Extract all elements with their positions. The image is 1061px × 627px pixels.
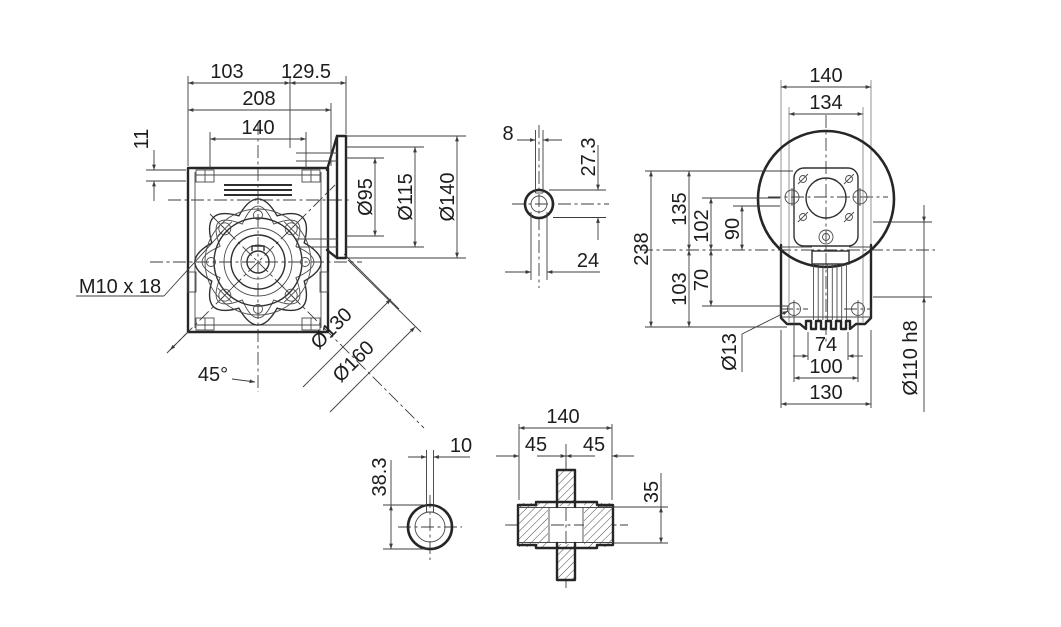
dim-side-135: 135 [669, 192, 691, 225]
dim-output-38-3: 38.3 [369, 458, 391, 497]
output-key-height-dim: 38.3 [369, 458, 428, 549]
dim-front-m10x18: M10 x 18 [79, 276, 161, 298]
side-view: 140 134 238 135 103 102 70 90 [631, 65, 935, 412]
side-top-dimensions: 140 134 [781, 65, 871, 114]
dim-front-103: 103 [210, 61, 243, 83]
dim-side-140: 140 [809, 65, 842, 87]
dim-side-130: 130 [809, 382, 842, 404]
dim-input-24: 24 [577, 250, 599, 272]
dim-front-o140: Ø140 [437, 173, 459, 222]
input-shaft-view: 8 27.3 24 [502, 123, 609, 288]
dim-front-o115: Ø115 [395, 173, 417, 220]
dim-side-74: 74 [815, 334, 837, 356]
hollow-shaft-view: 140 45 45 35 [496, 406, 668, 588]
side-left-dimensions: 238 135 103 102 70 90 [631, 171, 793, 327]
dim-front-208: 208 [242, 88, 275, 110]
dim-hollow-140: 140 [546, 406, 579, 428]
input-key-width-dim: 8 [502, 123, 562, 145]
dim-front-140: 140 [241, 117, 274, 139]
dim-front-45deg: 45° [198, 364, 228, 386]
dim-front-129-5: 129.5 [281, 61, 331, 83]
dim-front-o160: Ø160 [329, 337, 379, 387]
output-shaft-view: 10 38.3 [369, 435, 472, 560]
output-key-width-dim: 10 [408, 435, 472, 457]
dim-side-103: 103 [669, 272, 691, 305]
bolt-thread-callout: M10 x 18 [76, 231, 223, 298]
gearbox-dimension-drawing: 103 129.5 208 140 11 Ø95 Ø115 Ø140 [0, 0, 1061, 627]
dim-side-o110h8: Ø110 h8 [900, 320, 922, 395]
dim-side-238: 238 [631, 232, 653, 265]
drawing-sheet: 103 129.5 208 140 11 Ø95 Ø115 Ø140 [0, 0, 1061, 627]
input-key-height-dim: 27.3 [549, 138, 606, 240]
dim-front-11: 11 [131, 129, 153, 150]
dim-hollow-45-right: 45 [583, 434, 605, 456]
dim-side-100: 100 [809, 356, 842, 378]
front-top-dimensions: 103 129.5 208 140 [188, 61, 346, 168]
dim-side-70: 70 [691, 269, 713, 291]
front-lip-dimension: 11 [131, 129, 186, 201]
dim-front-o95: Ø95 [355, 178, 377, 216]
dim-output-10: 10 [450, 435, 472, 457]
dim-side-o13: Ø13 [719, 333, 741, 371]
dim-side-134: 134 [809, 92, 842, 114]
input-diameter-dim: 24 [505, 212, 600, 280]
side-hole-callout: Ø13 [719, 311, 788, 372]
dim-front-o130: Ø130 [307, 304, 357, 354]
dim-side-102: 102 [691, 209, 713, 242]
angle-callout: 45° [170, 330, 255, 386]
dim-hollow-35: 35 [641, 481, 663, 503]
input-flange-dimensions: Ø95 Ø115 Ø140 [346, 136, 466, 258]
front-view: 103 129.5 208 140 11 Ø95 Ø115 Ø140 [76, 61, 466, 428]
dim-side-90: 90 [722, 218, 744, 240]
dim-input-8: 8 [502, 123, 513, 145]
dim-input-27-3: 27.3 [578, 138, 600, 177]
dim-hollow-45-left: 45 [525, 434, 547, 456]
housing-fins-side [812, 251, 849, 320]
